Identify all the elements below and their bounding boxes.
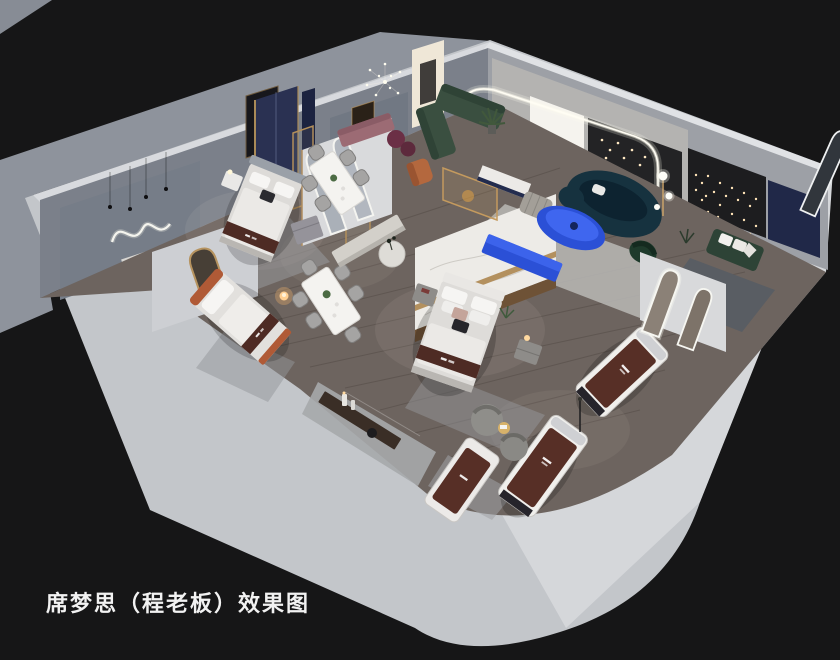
- plant-pot: [488, 125, 496, 134]
- glass-box-glow: [462, 190, 474, 202]
- vase-light: [343, 392, 346, 395]
- render-canvas: 席梦思（程老板）效果图: [0, 0, 840, 660]
- lamp-icon: [524, 335, 530, 341]
- orb-lamp-core: [282, 293, 286, 297]
- caption-text: 席梦思（程老板）效果图: [46, 586, 310, 618]
- vase: [351, 400, 355, 410]
- bonsai-leaf: [392, 236, 396, 240]
- plum-ottoman: [401, 142, 416, 157]
- bonsai-icon: [387, 239, 391, 243]
- lamp-head: [578, 397, 582, 401]
- niche-artwork: [420, 59, 436, 105]
- stool: [367, 428, 377, 438]
- book: [500, 425, 507, 429]
- lamp-icon: [228, 170, 233, 175]
- vase: [342, 394, 347, 406]
- showroom-render: [0, 0, 840, 660]
